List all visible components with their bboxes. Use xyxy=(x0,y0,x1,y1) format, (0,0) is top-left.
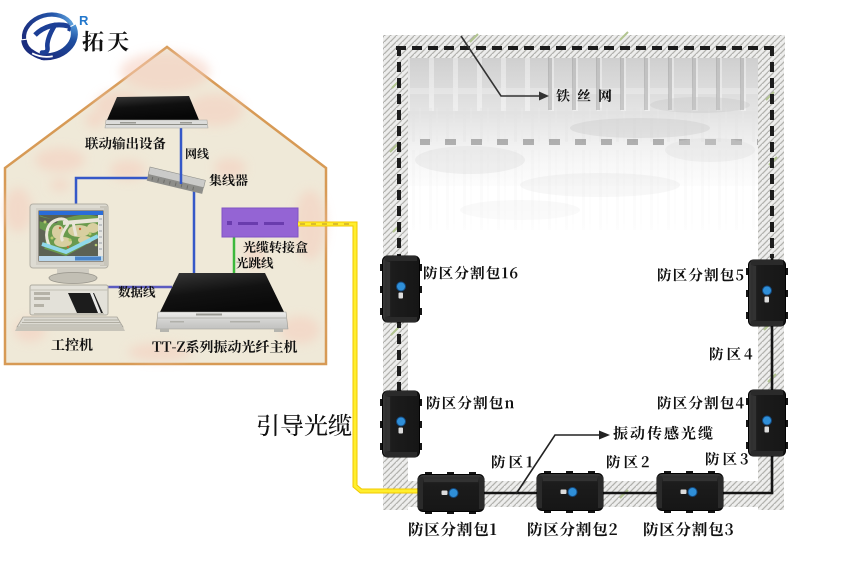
svg-text:R: R xyxy=(79,13,89,28)
